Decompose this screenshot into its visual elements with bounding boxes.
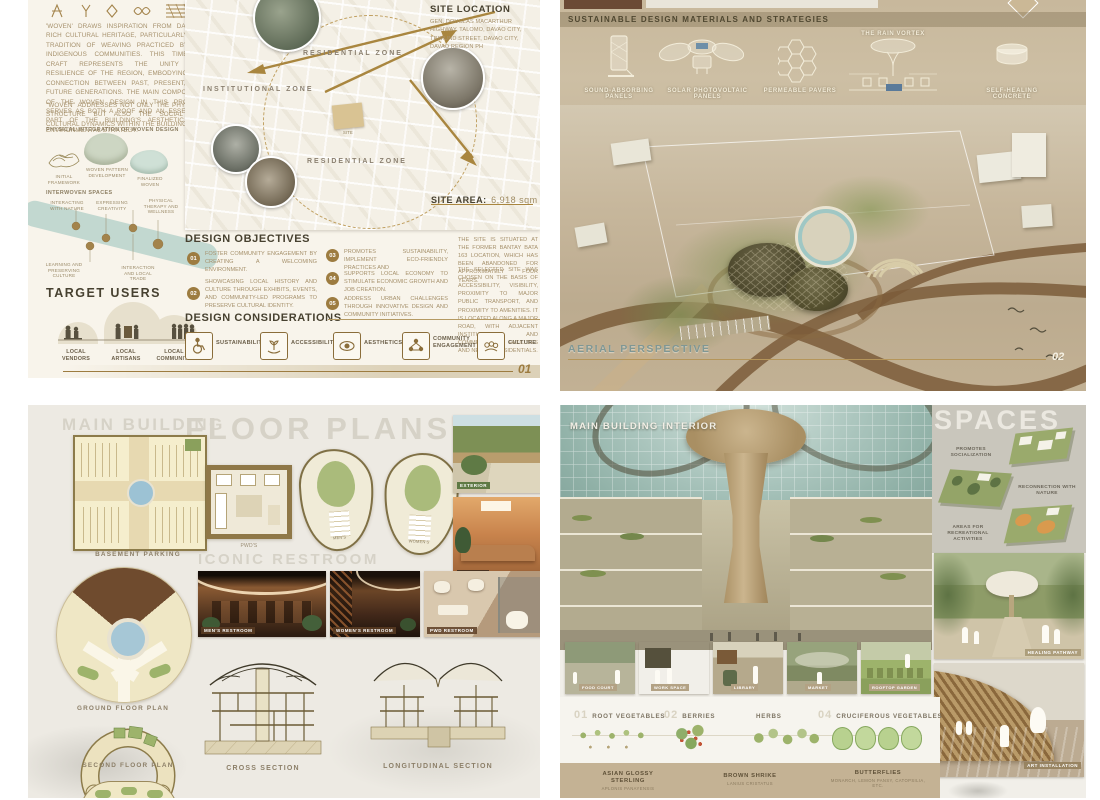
interwoven-label: LEARNING AND PRESERVING CULTURE: [42, 262, 86, 279]
objective-text: SUPPORTS LOCAL ECONOMY TO STIMULATE ECON…: [344, 270, 448, 294]
concept-secondary-paragraph: "WOVEN" ADDRESSES NOT ONLY THE PHYSICAL …: [46, 101, 204, 129]
pool-circle: [127, 479, 155, 507]
objective-number: 05: [326, 297, 339, 310]
art-installation-badge: ART INSTALLATION: [1024, 762, 1081, 769]
iso-diagram-recreation: [1004, 505, 1073, 544]
fauna-item: BROWN SHRIKE LANIUS CRISTATUS: [710, 773, 790, 786]
pwd-plan-label: PWD'S: [206, 543, 292, 549]
garden-item-number: 01: [574, 709, 588, 721]
floor-plans-title: FLOOR PLANS: [185, 411, 451, 447]
fauna-subtitle: APLONIS PANAYENSIS: [588, 786, 668, 791]
thumb-label: WORK SPACE: [651, 684, 689, 691]
site-photo-inset: [245, 156, 297, 208]
fauna-name: BROWN SHRIKE: [710, 773, 790, 780]
interwoven-label: INTERACTION AND LOCAL TRADE: [116, 265, 160, 282]
site-parcel: [332, 102, 364, 129]
site-parcel-tag: SITE: [335, 130, 361, 135]
design-considerations-title: DESIGN CONSIDERATIONS: [185, 312, 342, 324]
interwoven-spaces-title: INTERWOVEN SPACES: [46, 190, 113, 196]
root-vegetables-illustration: [576, 725, 648, 751]
womens-restroom-plan: WOMEN'S: [381, 451, 460, 557]
consideration-label: ACCESSIBILITY: [291, 340, 337, 347]
fauna-subtitle: MONARCH, LEMON PANSY, CATOPSILIA, ETC.: [828, 778, 928, 788]
material-label: THE RAIN VORTEX: [843, 31, 943, 37]
community-box: [402, 332, 430, 360]
panel-floor-plans: MAIN BUILDING FLOOR PLANS BASEMENT PARKI…: [28, 405, 540, 798]
sound-absorbing-panel-icon: [600, 34, 640, 82]
aerial-perspective-label: AERIAL PERSPECTIVE: [568, 343, 710, 355]
fauna-item: ASIAN GLOSSY STERLING APLONIS PANAYENSIS: [588, 771, 668, 791]
strategies-header-title: SUSTAINABLE DESIGN MATERIALS AND STRATEG…: [568, 15, 829, 24]
physical-integration-title: PHYSICAL INTEGRATION OF WOVEN DESIGN: [46, 127, 179, 133]
main-interior-label: MAIN BUILDING INTERIOR: [570, 421, 717, 432]
garden-item: HERBS: [752, 705, 782, 723]
restroom-photo-label: MEN'S RESTROOM: [201, 627, 255, 634]
restroom-photo-label: PWD RESTROOM: [427, 627, 477, 634]
cross-section-label: CROSS SECTION: [200, 765, 326, 772]
top-photo-strip: [564, 0, 642, 9]
panel-aerial: SUSTAINABLE DESIGN MATERIALS AND STRATEG…: [560, 0, 1086, 391]
consideration-label: SUSTAINABILITY: [216, 340, 264, 347]
page-rule: [63, 371, 513, 372]
garden-item-number: 04: [818, 709, 832, 721]
art-installation-photo: ART INSTALLATION: [934, 663, 1084, 777]
culture-group-icon: [482, 337, 500, 355]
restroom-photo-label: WOMEN'S RESTROOM: [333, 627, 396, 634]
cruciferous-illustration: [832, 725, 922, 751]
user-group-label: LOCAL ARTISANS: [106, 349, 146, 363]
weaving-symbols-icon: [46, 2, 201, 19]
mens-plan-label: MEN'S: [305, 532, 375, 542]
panel-concept-site: 'WOVEN' DRAWS INSPIRATION FROM DAVAO'S R…: [28, 0, 540, 378]
fauna-item: BUTTERFLIES MONARCH, LEMON PANSY, CATOPS…: [828, 770, 928, 788]
garden-item-label: BERRIES: [682, 713, 715, 720]
exterior-photo: EXTERIOR: [453, 415, 540, 493]
amphitheater-icon: [860, 233, 930, 289]
interwoven-label: EXPRESSING CREATIVITY: [94, 200, 130, 211]
objective-number: 01: [187, 252, 200, 265]
thumb-photo: LIBRARY: [713, 642, 783, 694]
wheelchair-icon: [190, 337, 208, 355]
context-building: [1012, 133, 1046, 177]
thumb-photo: FOOD COURT: [565, 642, 635, 694]
accessibility-box: [260, 332, 288, 360]
circular-plaza: [798, 209, 854, 265]
zone-label-institutional: INSTITUTIONAL ZONE: [203, 86, 314, 93]
iconic-restroom-title: ICONIC RESTROOM: [198, 551, 379, 568]
garden-item: 04CRUCIFEROUS VEGETABLES: [818, 705, 942, 723]
objective-number: 02: [187, 287, 200, 300]
herbs-illustration: [748, 723, 820, 753]
objective-number: 04: [326, 272, 339, 285]
pathway-badge: HEALING PATHWAY: [1025, 649, 1081, 656]
space-diagram-label: RECONNECTION WITH NATURE: [1016, 485, 1078, 497]
garden-item-number: 02: [664, 709, 678, 721]
objective-text: FOSTER COMMUNITY ENGAGEMENT BY CREATING …: [205, 250, 317, 274]
step-label: INITIAL FRAMEWORK: [42, 174, 86, 185]
user-group-label: LOCAL VENDORS: [56, 349, 96, 363]
permeable-pavers-honeycomb-icon: [778, 36, 822, 88]
exterior-badge: EXTERIOR: [457, 482, 490, 489]
aerial-rule: [568, 359, 1046, 360]
finalized-woven-blob: [130, 150, 168, 174]
interwoven-label: PHYSICAL THERAPY AND WELLNESS: [140, 198, 182, 215]
main-interior-render: MAIN BUILDING INTERIOR: [560, 405, 932, 650]
thumb-label: LIBRARY: [731, 684, 758, 691]
page-number: 02: [1052, 351, 1064, 363]
fauna-name: BUTTERFLIES: [828, 770, 928, 777]
garden-item-label: HERBS: [756, 713, 782, 720]
top-photo-strip: [646, 0, 878, 8]
healing-pathway-photo: HEALING PATHWAY: [934, 553, 1084, 659]
culture-box: [477, 332, 505, 360]
objective-text: ADDRESS URBAN CHALLENGES THROUGH INNOVAT…: [344, 295, 448, 319]
step-label: WOVEN PATTERN DEVELOPMENT: [86, 167, 128, 178]
target-users-title: TARGET USERS: [46, 286, 161, 300]
thumb-photo: MARKET: [787, 642, 857, 694]
interior-photo: INTERIOR: [453, 497, 540, 581]
fauna-subtitle: LANIUS CRISTATUS: [710, 781, 790, 786]
pwd-restroom-photo: PWD RESTROOM: [424, 571, 540, 637]
space-diagram-label: PROMOTES SOCIALIZATION: [942, 447, 1000, 459]
consideration-label: CULTURE: [508, 340, 540, 347]
site-address: GEN. DOUGLAS MACARTHUR HIGHWAY, TALOMO, …: [430, 18, 534, 52]
garden-band: 01ROOT VEGETABLES 02BERRIES HERBS 04CRUC…: [560, 697, 940, 763]
mens-restroom-plan: MEN'S: [297, 447, 378, 554]
interwoven-label: INTERACTING WITH NATURE: [50, 200, 84, 211]
material-label: SOLAR PHOTOVOLTAIC PANELS: [660, 88, 755, 100]
aerial-render: AERIAL PERSPECTIVE 02: [560, 105, 1086, 391]
site-area-underline: [431, 204, 533, 205]
garden-item-label: CRUCIFEROUS VEGETABLES: [836, 713, 942, 720]
site-location-title: SITE LOCATION: [430, 4, 510, 15]
consideration-label: COMMUNITY ENGAGEMENT: [433, 336, 479, 351]
garden-item-label: ROOT VEGETABLES: [592, 713, 665, 720]
target-users-silhouettes-icon: [56, 318, 206, 346]
design-objectives-title: DESIGN OBJECTIVES: [185, 233, 310, 245]
berries-illustration: [668, 721, 714, 753]
initial-framework-sketch-icon: [47, 147, 81, 171]
thumb-label: FOOD COURT: [579, 684, 617, 691]
space-diagram-label: AREAS FOR RECREATIONAL ACTIVITIES: [936, 525, 1000, 544]
garden-item: 01ROOT VEGETABLES: [574, 705, 665, 723]
hand-plant-icon: [265, 337, 283, 355]
basement-parking-plan: [73, 435, 207, 551]
step-label: FINALIZED WOVEN: [130, 176, 170, 187]
woven-pattern-blob: [84, 133, 128, 165]
eye-icon: [338, 337, 356, 355]
community-people-icon: [407, 337, 425, 355]
iso-diagram-nature: [938, 469, 1012, 507]
ground-floor-label: GROUND FLOOR PLAN: [56, 705, 190, 712]
self-healing-concrete-icon: [992, 42, 1032, 68]
fauna-band: ASIAN GLOSSY STERLING APLONIS PANAYENSIS…: [560, 763, 940, 798]
longitudinal-section-label: LONGITUDINAL SECTION: [368, 763, 508, 770]
site-map: SITE RESIDENTIAL ZONE INSTITUTIONAL ZONE…: [185, 0, 540, 230]
zone-label-residential-north: RESIDENTIAL ZONE: [303, 50, 403, 57]
site-photo-inset: [421, 46, 485, 110]
objective-text: SHOWCASING LOCAL HISTORY AND CULTURE THR…: [205, 278, 317, 310]
context-building: [1021, 204, 1052, 228]
zone-label-residential-south: RESIDENTIAL ZONE: [307, 158, 407, 165]
ground-floor-plan: [56, 567, 192, 703]
watercolor-blot: [948, 781, 1008, 798]
thumb-photo: WORK SPACE: [639, 642, 709, 694]
consideration-label: AESTHETICS: [364, 340, 404, 347]
panel-interior-spaces: MAIN BUILDING INTERIOR SPACES PROMOTES S…: [560, 405, 1086, 798]
basement-parking-label: BASEMENT PARKING: [73, 551, 203, 558]
thumb-label: MARKET: [805, 684, 831, 691]
objective-number: 03: [326, 249, 339, 262]
rain-vortex-diagram-icon: [843, 38, 943, 100]
womens-plan-label: WOMEN'S: [384, 537, 454, 546]
second-floor-label: SECOND FLOOR PLAN: [61, 762, 195, 769]
site-area-row: SITE AREA: 6,918 sqm: [431, 190, 538, 208]
considerations-rule: [328, 319, 540, 320]
pwd-restroom-plan: [206, 465, 292, 539]
solar-photovoltaic-icon: [655, 38, 750, 78]
poster-canvas: 'WOVEN' DRAWS INSPIRATION FROM DAVAO'S R…: [0, 0, 1100, 800]
longitudinal-section-drawing: [368, 655, 508, 755]
mens-restroom-photo: MEN'S RESTROOM: [198, 571, 326, 637]
womens-restroom-photo: WOMEN'S RESTROOM: [330, 571, 420, 637]
material-label: SOUND-ABSORBING PANELS: [574, 88, 664, 100]
objective-text: PROMOTES SUSTAINABILITY, IMPLEMENT ECO-F…: [344, 248, 448, 272]
sustainability-box: [185, 332, 213, 360]
thumb-label: ROOFTOP GARDEN: [869, 684, 920, 691]
fauna-name: ASIAN GLOSSY STERLING: [588, 771, 668, 785]
thumb-photo: ROOFTOP GARDEN: [861, 642, 931, 694]
aesthetics-box: [333, 332, 361, 360]
page-number: 01: [518, 362, 531, 376]
material-label: SELF-HEALING CONCRETE: [968, 88, 1056, 100]
material-label: PERMEABLE PAVERS: [760, 88, 840, 94]
cross-section-drawing: [200, 653, 326, 761]
